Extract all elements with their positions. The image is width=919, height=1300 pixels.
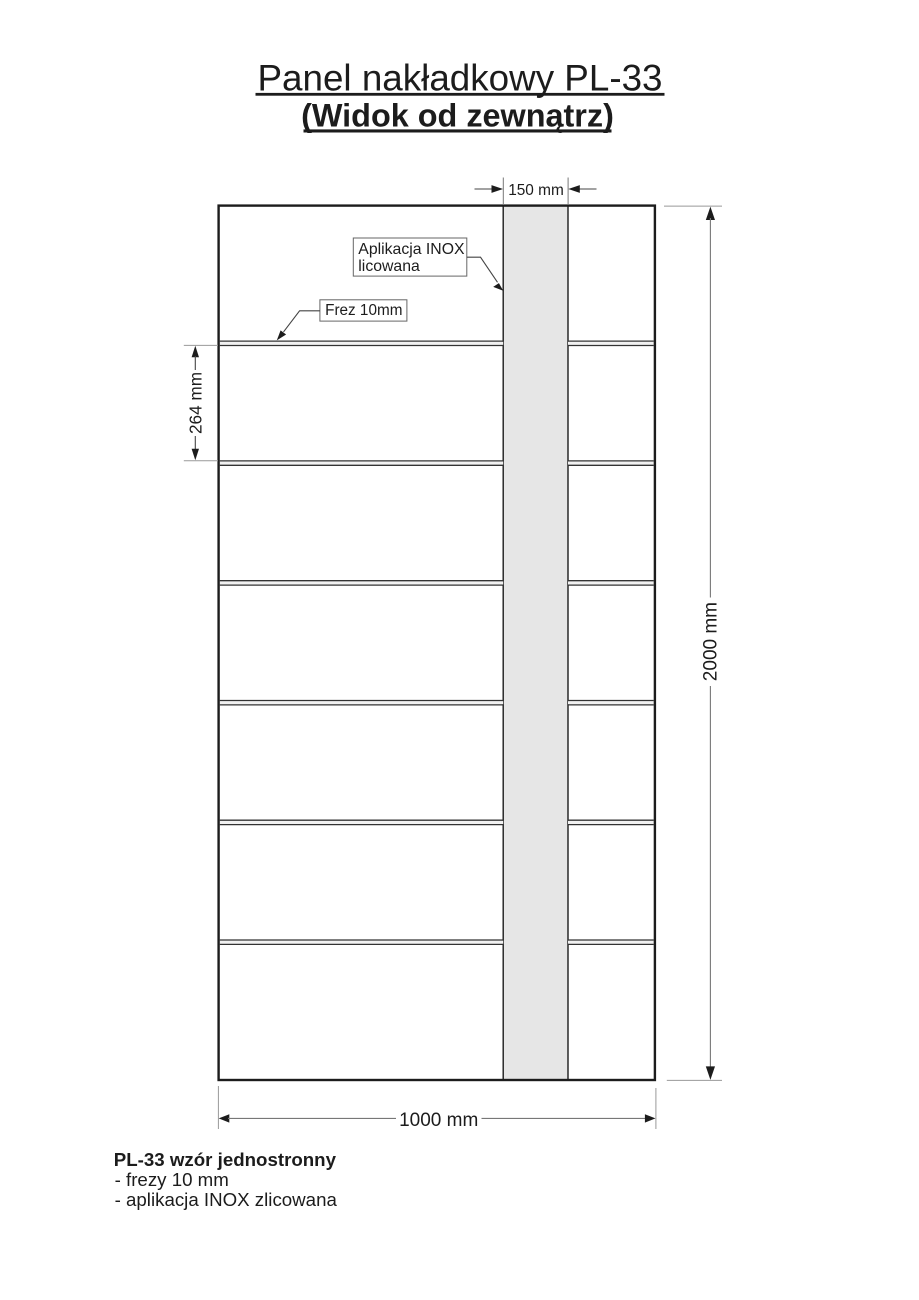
svg-text:2000 mm: 2000 mm (701, 602, 722, 681)
svg-text:Frez 10mm: Frez 10mm (325, 302, 402, 319)
svg-text:- frezy 10 mm: - frezy 10 mm (115, 1169, 229, 1190)
svg-text:licowana: licowana (358, 258, 420, 275)
svg-text:1000 mm: 1000 mm (399, 1110, 478, 1131)
svg-text:- aplikacja INOX zlicowana: - aplikacja INOX zlicowana (115, 1189, 338, 1210)
svg-text:Aplikacja INOX: Aplikacja INOX (358, 241, 465, 258)
svg-text:264 mm: 264 mm (185, 372, 205, 434)
svg-text:Panel nakładkowy PL-33: Panel nakładkowy PL-33 (257, 58, 662, 99)
svg-text:(Widok od zewnątrz): (Widok od zewnątrz) (301, 97, 614, 133)
svg-text:150 mm: 150 mm (508, 182, 564, 199)
svg-text:PL-33 wzór jednostronny: PL-33 wzór jednostronny (114, 1149, 337, 1170)
